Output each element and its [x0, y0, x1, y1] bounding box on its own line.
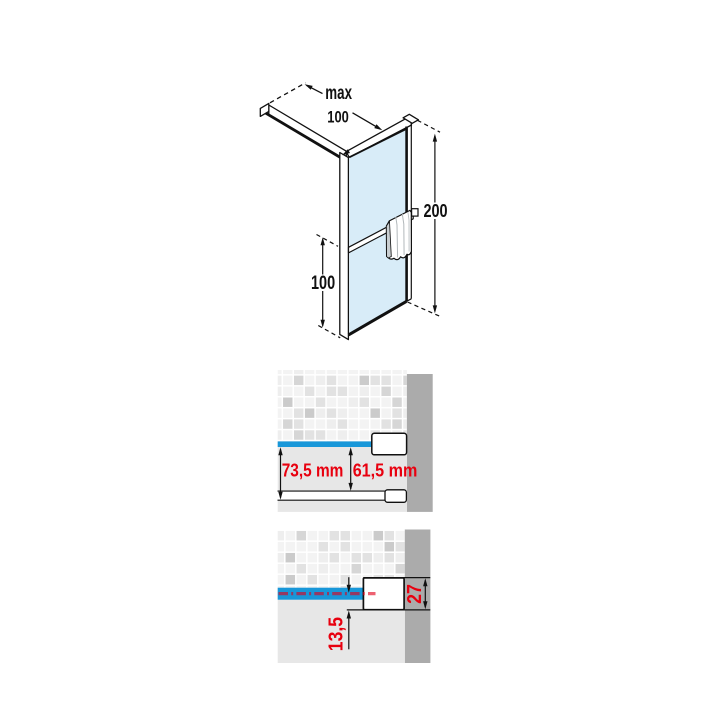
svg-text:200: 200 — [424, 200, 448, 221]
svg-text:73,5 mm: 73,5 mm — [282, 460, 344, 481]
svg-text:100: 100 — [311, 273, 335, 294]
svg-text:max: max — [325, 83, 352, 104]
svg-text:61,5 mm: 61,5 mm — [353, 460, 418, 481]
svg-text:100: 100 — [327, 108, 349, 127]
svg-text:13,5: 13,5 — [324, 617, 347, 651]
svg-text:27: 27 — [403, 584, 426, 604]
